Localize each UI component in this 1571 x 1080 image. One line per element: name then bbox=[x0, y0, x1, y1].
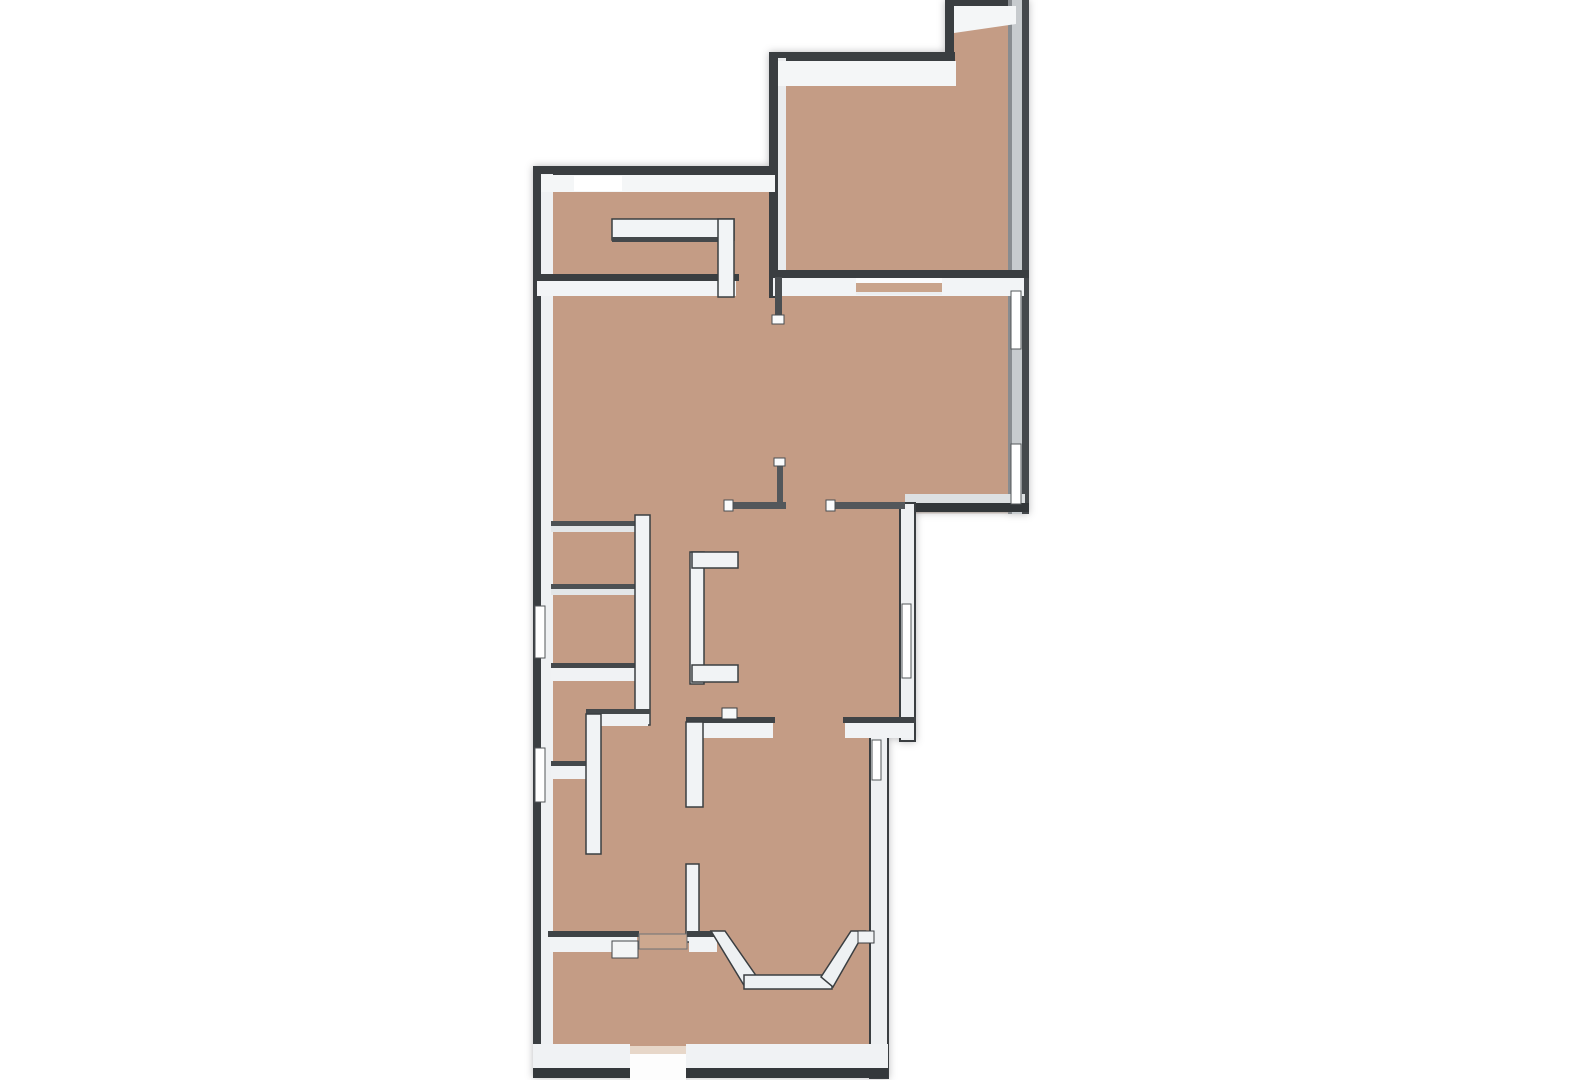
railing-upper-stub-cap bbox=[772, 315, 784, 324]
chimney-bracket-bottom-arm bbox=[692, 665, 738, 682]
window-east-2 bbox=[1011, 444, 1021, 504]
wall-face-upper-right-west bbox=[778, 58, 786, 270]
partition-h1-edge bbox=[551, 521, 639, 526]
window-west-1 bbox=[535, 606, 545, 658]
floorplan-layers bbox=[533, 0, 1029, 1080]
railing-upper-stub bbox=[775, 277, 782, 317]
wall-south-bay-left-edge bbox=[548, 931, 639, 937]
wall-y722-right-face bbox=[845, 723, 914, 738]
wall-vertical-2 bbox=[586, 714, 601, 854]
chimney-bracket-top-arm bbox=[692, 552, 738, 568]
window-mid-right bbox=[902, 604, 911, 678]
wall-pier-stub bbox=[612, 941, 638, 958]
railing-spur bbox=[829, 502, 905, 509]
wall-spine-notch-west bbox=[945, 0, 954, 58]
window-west-2 bbox=[535, 748, 545, 802]
wall-spine-east-outer bbox=[1022, 0, 1029, 514]
upper-left-inner-vertical bbox=[718, 219, 734, 297]
wall-h3-face bbox=[551, 668, 639, 681]
wall-vertical-1 bbox=[635, 515, 650, 725]
wall-spine-upper-right-north bbox=[769, 52, 955, 61]
wall-east-inner-line bbox=[1008, 0, 1012, 514]
bay-right-link bbox=[858, 931, 874, 943]
sliding-door-track bbox=[856, 283, 942, 292]
wall-face-upper-right-north bbox=[778, 61, 956, 86]
wall-face-bottom-right bbox=[686, 1044, 888, 1070]
window-east-1 bbox=[1011, 291, 1021, 349]
window-lower-right bbox=[872, 740, 881, 780]
wall-spine-upper-right-south bbox=[769, 270, 1029, 278]
partition-h1-face bbox=[551, 526, 639, 532]
wall-spine-north-main bbox=[533, 166, 779, 175]
railing-l-vertical-cap bbox=[774, 458, 785, 466]
sliding-door-ledge bbox=[856, 278, 942, 283]
wall-h3-edge bbox=[551, 663, 639, 668]
wall-spine-notch-north bbox=[945, 0, 1018, 6]
chimney-bracket-vertical bbox=[690, 552, 704, 684]
wall-face-bottom-left bbox=[533, 1044, 630, 1070]
wall-stub-lower bbox=[686, 864, 699, 942]
wall-spine-upper-left-south bbox=[533, 274, 739, 281]
bay-window-bottom bbox=[744, 975, 832, 989]
sliding-door-bottom-edge bbox=[856, 292, 942, 295]
wall-mid-vertical-arm bbox=[686, 722, 703, 807]
window-north-panel bbox=[574, 176, 622, 191]
door-threshold-south bbox=[639, 934, 687, 949]
wall-face-upper-left-south bbox=[537, 281, 736, 296]
railing-l-horizontal-cap bbox=[724, 500, 733, 511]
wall-face-right-ext-south bbox=[905, 494, 1025, 503]
railing-l-vertical bbox=[777, 461, 783, 509]
wall-tiny-stub bbox=[722, 708, 737, 719]
railing-spur-cap bbox=[826, 500, 835, 511]
upper-left-inner-band-edge bbox=[612, 237, 734, 242]
wall-y722-right-edge bbox=[843, 717, 916, 723]
entry-gap-outside bbox=[630, 1054, 686, 1080]
partition-h2-face bbox=[551, 589, 639, 595]
wall-spine-bottom-right bbox=[686, 1068, 888, 1078]
floorplan-page bbox=[0, 0, 1571, 1080]
wall-spine-right-ext-south bbox=[903, 503, 1029, 512]
wall-south-bay-mid-face bbox=[689, 937, 717, 952]
partition-h2-edge bbox=[551, 584, 639, 589]
wall-spine-bottom-left bbox=[533, 1068, 630, 1078]
floorplan-render bbox=[0, 0, 1571, 1080]
entry-gap-threshold bbox=[630, 1046, 686, 1054]
upper-left-inner-band bbox=[612, 219, 734, 240]
